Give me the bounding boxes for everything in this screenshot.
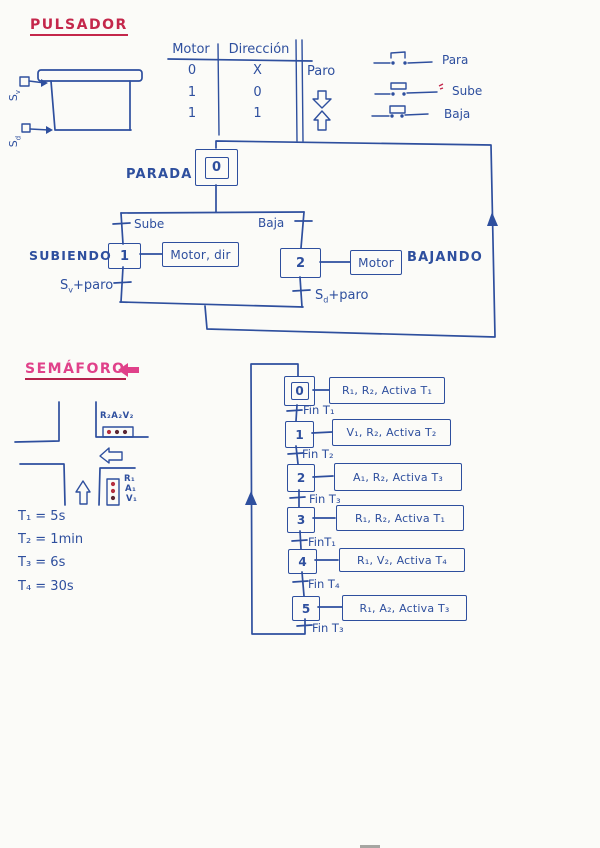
sem-action-0: R₁, R₂, Activa T₁ — [329, 377, 445, 404]
table-cell: X — [230, 63, 285, 78]
light-v-label-v1: V₁ — [126, 494, 137, 504]
light-h-label: R₂A₂V₂ — [100, 411, 134, 421]
light-v-label-a1: A₁ — [125, 484, 136, 494]
sensor-sv-symbol — [20, 77, 29, 86]
action-box-motor: Motor — [350, 250, 402, 275]
sem-transition-5: Fin T₃ — [312, 621, 344, 635]
transition-sd-paro-label: Sd+paro — [315, 288, 369, 305]
state-subiendo-label: SUBIENDO — [29, 248, 112, 263]
sensor-sd-symbol — [22, 124, 30, 132]
table-result-paro: Paro — [307, 64, 335, 79]
pushbutton-sube-label: Sube — [452, 84, 482, 98]
table-header-motor: Motor — [166, 42, 216, 57]
sem-transition-0: Fin T₁ — [303, 403, 335, 417]
pushbutton-para-label: Para — [442, 53, 468, 67]
action-box-motor-dir: Motor, dir — [162, 242, 239, 267]
light-v-label-r1: R₁ — [124, 474, 135, 484]
transition-sv-paro-label: Sv+paro — [60, 278, 113, 295]
traffic-light-vertical-icon — [107, 479, 119, 505]
table-cell: 1 — [172, 106, 212, 121]
timer-t1: T₁ = 5s — [18, 509, 65, 524]
sem-action-5: R₁, A₂, Activa T₃ — [342, 595, 467, 621]
state-parada-label: PARADA — [126, 167, 193, 182]
sem-action-4: R₁, V₂, Activa T₄ — [339, 548, 465, 572]
state-bajando-label: BAJANDO — [407, 250, 483, 265]
sensor-sv-label: Sv — [9, 88, 20, 103]
table-cell: 1 — [172, 85, 212, 100]
up-arrow-icon — [76, 481, 90, 504]
section-title-pulsador: PULSADOR — [30, 17, 128, 36]
timer-t3: T₃ = 6s — [18, 555, 65, 570]
traffic-light-horizontal-icon — [103, 427, 133, 437]
sem-transition-3: FinT₁ — [308, 535, 336, 549]
hollow-down-arrow-icon — [313, 91, 331, 108]
table-cell: 1 — [230, 106, 285, 121]
left-arrow-icon — [100, 448, 122, 463]
shutter-sketch — [20, 70, 142, 134]
sem-transition-4: Fin T₄ — [308, 577, 340, 591]
sem-transition-1: Fin T₂ — [302, 447, 334, 461]
sem-state-1: 1 — [285, 421, 314, 448]
pushbutton-baja-label: Baja — [444, 107, 470, 121]
section-title-semaforo: SEMÁFORO — [25, 361, 126, 380]
timer-t2: T₂ = 1min — [18, 532, 83, 547]
sem-state-5: 5 — [292, 596, 320, 621]
table-cell: 0 — [172, 63, 212, 78]
sem-state-0: 0 — [284, 376, 315, 406]
sem-action-3: R₁, R₂, Activa T₁ — [336, 505, 464, 531]
hollow-up-arrow-icon — [314, 111, 330, 130]
grafcet-state-2: 2 — [280, 248, 321, 278]
sem-transition-2: Fin T₃ — [309, 492, 341, 506]
red-mark — [439, 84, 443, 89]
pushbutton-baja-symbol — [372, 106, 428, 118]
timer-t4: T₄ = 30s — [18, 579, 74, 594]
scanned-notes-page: PULSADOR Sv Sd Motor Dirección 0 X 1 0 1… — [0, 0, 600, 848]
loop-up-arrowhead — [245, 491, 257, 505]
sem-state-2: 2 — [287, 464, 315, 492]
grafcet-state-1: 1 — [108, 243, 141, 269]
pushbutton-para-symbol — [374, 52, 432, 65]
table-cell: 0 — [230, 85, 285, 100]
sensor-sd-label: Sd — [9, 134, 20, 149]
loop-up-arrowhead — [487, 212, 498, 226]
sem-state-4: 4 — [288, 549, 317, 574]
grafcet-initial-state-0: 0 — [195, 149, 238, 186]
table-header-direccion: Dirección — [224, 42, 294, 57]
pushbutton-sube-symbol — [375, 83, 443, 96]
sem-action-2: A₁, R₂, Activa T₃ — [334, 463, 462, 491]
transition-baja-label: Baja — [258, 216, 284, 230]
transition-sube-label: Sube — [134, 217, 164, 231]
sem-state-3: 3 — [287, 507, 315, 533]
sem-action-1: V₁, R₂, Activa T₂ — [332, 419, 451, 446]
